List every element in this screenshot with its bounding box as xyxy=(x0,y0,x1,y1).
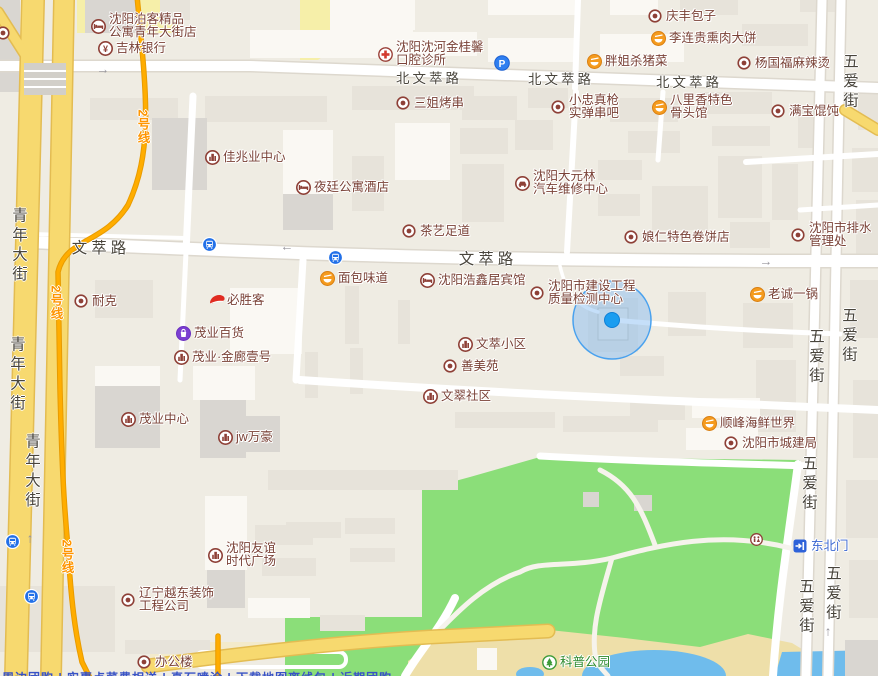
restaurant-icon xyxy=(702,416,717,431)
street-label: 文萃路 xyxy=(72,236,131,258)
poi-label: 沈阳友谊时代广场 xyxy=(226,542,276,568)
bus-station-icon[interactable] xyxy=(5,534,20,549)
labels-layer: 沈阳泊客精品公寓青年大街店¥吉林银行沈阳沈河金桂馨口腔诊所P胖姐杀猪菜庆丰包子李… xyxy=(0,0,878,676)
poi-dot-icon xyxy=(737,56,752,71)
pizza-hut-logo xyxy=(209,293,224,308)
poi-label: 茂业百货 xyxy=(194,327,244,340)
poi-label: 茂业·金廊壹号 xyxy=(192,351,271,364)
poi-label: 茂业中心 xyxy=(139,413,189,426)
restroom-icon xyxy=(750,533,765,548)
car-repair-icon xyxy=(515,176,530,191)
poi-label: 沈阳泊客精品公寓青年大街店 xyxy=(109,13,197,39)
restaurant-icon xyxy=(651,31,666,46)
street-label: 五爱街 xyxy=(804,328,826,387)
street-label: 五爱街 xyxy=(821,565,843,624)
landmark-building-icon xyxy=(205,150,220,165)
street-label: 青年大街 xyxy=(7,207,29,285)
poi-dot-icon xyxy=(396,96,411,111)
restaurant-icon xyxy=(750,287,765,302)
poi-dot-icon xyxy=(137,655,152,670)
street-label: 青年大街 xyxy=(5,336,27,414)
street-label: 五爱街 xyxy=(794,578,816,637)
poi-label: 小忠真枪实弹串吧 xyxy=(569,94,619,120)
landmark-building-icon xyxy=(208,548,223,563)
shopping-bag-icon xyxy=(176,326,191,341)
poi-label: 三姐烤串 xyxy=(414,97,464,110)
metro-line-2-label: 2号线 xyxy=(58,540,77,575)
poi-label: 沈阳大元林汽车维修中心 xyxy=(533,170,608,196)
one-way-arrow: → xyxy=(760,254,773,269)
poi-dot-icon xyxy=(0,26,11,41)
metro-line-2-label: 2号线 xyxy=(47,286,66,321)
one-way-arrow: → xyxy=(97,62,110,77)
poi-dot-icon xyxy=(551,100,566,115)
one-way-arrow: ← xyxy=(281,239,294,254)
restaurant-icon xyxy=(320,271,335,286)
hotel-bed-icon xyxy=(91,19,106,34)
metro-line-2-label: 2号线 xyxy=(134,110,153,145)
svg-text:P: P xyxy=(499,59,506,70)
poi-label: 必胜客 xyxy=(227,294,265,307)
poi-label: 沈阳浩鑫居宾馆 xyxy=(438,274,526,287)
poi-label: 顺峰海鲜世界 xyxy=(720,417,795,430)
restaurant-icon xyxy=(652,100,667,115)
street-label: 青年大街 xyxy=(20,433,42,511)
poi-label: 娘仁特色卷饼店 xyxy=(642,231,730,244)
poi-label: 东北门 xyxy=(811,540,849,553)
bus-station-icon[interactable] xyxy=(24,589,39,604)
street-label: 五爱街 xyxy=(797,455,819,514)
one-way-arrow: ↑ xyxy=(27,531,34,546)
poi-label: 满宝馄饨 xyxy=(789,105,839,118)
poi-dot-icon xyxy=(791,228,806,243)
poi-label: 老诚一锅 xyxy=(768,288,818,301)
poi-label: jw万豪 xyxy=(236,431,273,444)
poi-label: 沈阳市排水管理处 xyxy=(809,222,872,248)
bus-station-icon[interactable] xyxy=(328,250,343,265)
street-label: 五爱街 xyxy=(838,53,860,112)
poi-label: 耐克 xyxy=(92,295,117,308)
poi-label: 沈阳沈河金桂馨口腔诊所 xyxy=(396,41,484,67)
street-label: 五爱街 xyxy=(837,307,859,366)
poi-label: 庆丰包子 xyxy=(666,10,716,23)
poi-label: 李连贵熏肉大饼 xyxy=(669,32,757,45)
tree-icon xyxy=(542,655,557,670)
poi-label: 八里香特色骨头馆 xyxy=(670,94,733,120)
poi-label: 办公楼 xyxy=(155,656,193,669)
poi-dot-icon xyxy=(771,104,786,119)
poi-label: 夜廷公寓酒店 xyxy=(314,181,389,194)
street-label: 北文萃路 xyxy=(396,67,462,87)
landmark-building-icon xyxy=(121,412,136,427)
poi-dot-icon xyxy=(402,224,417,239)
poi-label: 吉林银行 xyxy=(116,42,166,55)
hotel-bed-icon xyxy=(420,273,435,288)
poi-label: 面包味道 xyxy=(338,272,388,285)
poi-dot-icon xyxy=(121,593,136,608)
bottom-ad-strip[interactable]: 周边团购 | 实惠点菜费相送 | 真石喷涂 | 下载地图离线包 | 近期团购 xyxy=(2,669,452,676)
poi-label: 杨国福麻辣烫 xyxy=(755,57,830,70)
landmark-building-icon xyxy=(174,350,189,365)
map-viewport[interactable]: 沈阳泊客精品公寓青年大街店¥吉林银行沈阳沈河金桂馨口腔诊所P胖姐杀猪菜庆丰包子李… xyxy=(0,0,878,676)
landmark-building-icon xyxy=(458,337,473,352)
poi-dot-icon xyxy=(530,286,545,301)
poi-dot-icon xyxy=(443,359,458,374)
landmark-building-icon xyxy=(218,430,233,445)
restaurant-icon xyxy=(587,54,602,69)
bank-yuan-icon: ¥ xyxy=(98,41,113,56)
poi-label: 文翠社区 xyxy=(441,390,491,403)
hotel-bed-icon xyxy=(296,180,311,195)
landmark-building-icon xyxy=(423,389,438,404)
poi-dot-icon xyxy=(74,294,89,309)
poi-label: 善美苑 xyxy=(461,360,499,373)
poi-label: 佳兆业中心 xyxy=(223,151,286,164)
poi-label: 科普公园 xyxy=(560,656,610,669)
clinic-cross-icon xyxy=(378,47,393,62)
street-label: 北文萃路 xyxy=(656,71,722,91)
poi-label: 沈阳市城建局 xyxy=(742,437,817,450)
one-way-arrow: ↑ xyxy=(825,624,832,639)
svg-text:¥: ¥ xyxy=(103,44,108,54)
poi-label: 文萃小区 xyxy=(476,338,526,351)
poi-label: 沈阳市建设工程质量检测中心 xyxy=(548,280,636,306)
bus-station-icon[interactable] xyxy=(202,237,217,252)
poi-dot-icon xyxy=(624,230,639,245)
street-label: 北文萃路 xyxy=(528,68,594,88)
park-gate-icon xyxy=(793,539,808,554)
parking-icon: P xyxy=(494,55,509,70)
poi-label: 胖姐杀猪菜 xyxy=(605,55,668,68)
poi-dot-icon xyxy=(648,9,663,24)
poi-label: 茶艺足道 xyxy=(420,225,470,238)
poi-label: 辽宁越东装饰工程公司 xyxy=(139,587,214,613)
poi-dot-icon xyxy=(724,436,739,451)
street-label: 文萃路 xyxy=(459,247,518,269)
